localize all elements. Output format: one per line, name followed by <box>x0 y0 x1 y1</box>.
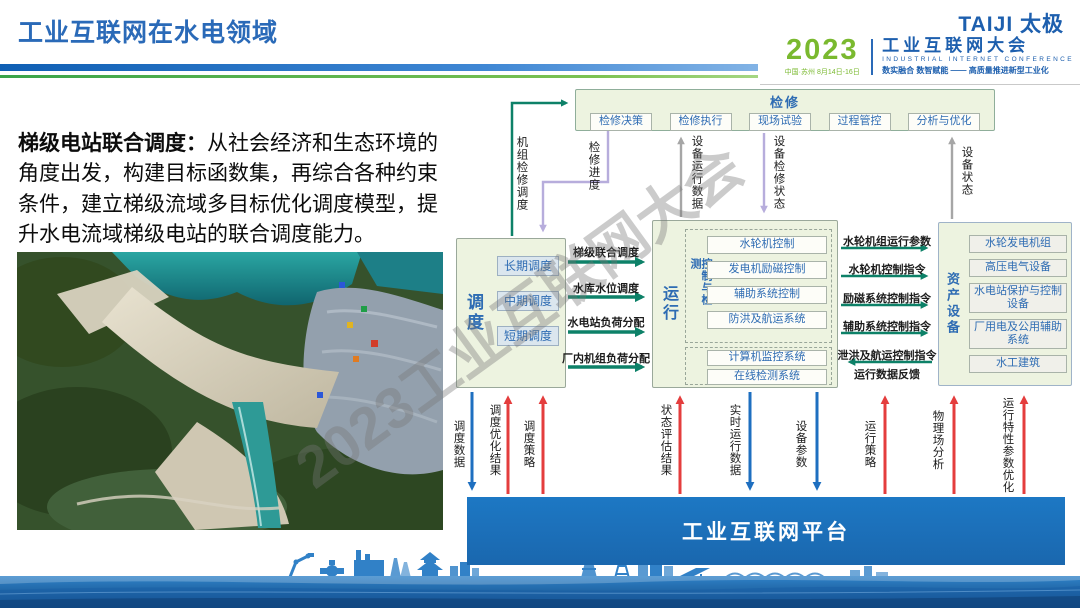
conference-name-en: INDUSTRIAL INTERNET CONFERENCE <box>882 56 1074 63</box>
platform-link-label: 物理场分析 <box>931 410 943 470</box>
taiji-logo: TAIJI 太极 <box>958 8 1064 38</box>
asset-item: 水轮发电机组 <box>969 235 1067 253</box>
maintenance-item: 分析与优化 <box>908 113 980 131</box>
o2a-label: 水轮机组运行参数 <box>828 233 946 249</box>
operation-box: 运行 控制与检测 水轮机控制 发电机励磁控制 辅助系统控制 防洪及航运系统 计算… <box>652 220 838 388</box>
control-detection-group: 控制与检测 水轮机控制 发电机励磁控制 辅助系统控制 防洪及航运系统 <box>685 229 832 343</box>
maintenance-box: 检修 检修决策 检修执行 现场试验 过程管控 分析与优化 <box>575 89 995 131</box>
intro-paragraph: 梯级电站联合调度：从社会经济和生态环境的角度出发，构建目标函数集，再综合各种约束… <box>18 129 448 251</box>
page-title: 工业互联网在水电领域 <box>18 13 278 49</box>
platform-link-label: 设备参数 <box>794 420 806 468</box>
asset-item: 水电站保护与控制设备 <box>969 283 1067 313</box>
logo-underline <box>760 84 1080 85</box>
d2o-label: 水库水位调度 <box>554 280 658 296</box>
dispatch-box: 调度 长期调度 中期调度 短期调度 <box>456 238 566 388</box>
control-item: 发电机励磁控制 <box>707 261 827 279</box>
slide: 工业互联网在水电领域 TAIJI 太极 2023 中国·苏州 8月14日-16日… <box>0 0 1080 608</box>
intro-lead: 梯级电站联合调度： <box>18 132 207 155</box>
o2a-label: 水轮机控制指令 <box>828 261 946 277</box>
asset-item: 高压电气设备 <box>969 259 1067 277</box>
control-item: 辅助系统控制 <box>707 286 827 304</box>
operation-title: 运行 <box>660 285 676 323</box>
monitor-group: 计算机监控系统 在线检测系统 <box>685 347 832 385</box>
link-label-equipment-maintenance-status: 设备检修状态 <box>772 135 784 210</box>
platform-link-label: 运行策略 <box>863 420 875 468</box>
link-label-unit-maintenance-dispatch: 机组检修调度 <box>515 136 527 211</box>
platform-link-label: 运行特性参数优化 <box>1001 397 1013 493</box>
platform-link-label: 调度策略 <box>522 420 534 468</box>
o2a-feedback-label: 运行数据反馈 <box>828 366 946 382</box>
wave-band <box>0 576 1080 608</box>
assets-title: 资产设备 <box>946 272 959 336</box>
dispatch-title: 调度 <box>465 293 482 333</box>
monitor-item: 计算机监控系统 <box>707 350 827 366</box>
conference-slogan: 数实融合 数智赋能 —— 高质量推进新型工业化 <box>882 65 1074 76</box>
dispatch-item: 短期调度 <box>497 326 559 346</box>
conference-venue: 中国·苏州 8月14日-16日 <box>782 67 862 77</box>
o2a-label: 励磁系统控制指令 <box>828 290 946 306</box>
d2o-label: 水电站负荷分配 <box>554 314 658 330</box>
conference-logo-left: 2023 中国·苏州 8月14日-16日 <box>782 36 862 77</box>
d2o-label: 厂内机组负荷分配 <box>554 350 658 366</box>
d2o-label: 梯级联合调度 <box>554 244 658 260</box>
o2a-label: 泄洪及航运控制指令 <box>828 347 946 363</box>
platform-label: 工业互联网平台 <box>682 516 850 546</box>
conference-logo-divider <box>871 39 873 75</box>
platform-link-label: 调度优化结果 <box>488 404 500 476</box>
conference-year: 2023 <box>782 36 862 65</box>
link-label-equipment-status: 设备状态 <box>960 146 972 196</box>
control-item: 防洪及航运系统 <box>707 311 827 329</box>
control-item: 水轮机控制 <box>707 236 827 254</box>
conference-logo: 2023 中国·苏州 8月14日-16日 工业互联网大会 INDUSTRIAL … <box>782 36 1074 77</box>
maintenance-item: 检修决策 <box>590 113 652 131</box>
maintenance-item: 检修执行 <box>670 113 732 131</box>
assets-box: 资产设备 水轮发电机组 高压电气设备 水电站保护与控制设备 厂用电及公用辅助系统… <box>938 222 1072 386</box>
dispatch-item: 长期调度 <box>497 256 559 276</box>
dispatch-item: 中期调度 <box>497 291 559 311</box>
conference-logo-right: 工业互联网大会 INDUSTRIAL INTERNET CONFERENCE 数… <box>882 37 1074 77</box>
platform-link-label: 调度数据 <box>452 420 464 468</box>
maintenance-title: 检修 <box>576 92 994 111</box>
asset-item: 厂用电及公用辅助系统 <box>969 319 1067 349</box>
maintenance-item: 过程管控 <box>829 113 891 131</box>
link-label-equipment-operating-data: 设备运行数据 <box>690 135 702 210</box>
monitor-item: 在线检测系统 <box>707 369 827 385</box>
o2a-label: 辅助系统控制指令 <box>828 318 946 334</box>
platform-link-label: 实时运行数据 <box>728 404 740 476</box>
asset-item: 水工建筑 <box>969 355 1067 373</box>
platform-link-label: 状态评估结果 <box>659 404 671 476</box>
link-label-maintenance-progress: 检修进度 <box>587 141 599 191</box>
maintenance-item: 现场试验 <box>749 113 811 131</box>
conference-name: 工业互联网大会 <box>882 37 1074 56</box>
industrial-internet-platform-bar: 工业互联网平台 <box>467 497 1065 565</box>
dam-photo <box>17 252 443 530</box>
